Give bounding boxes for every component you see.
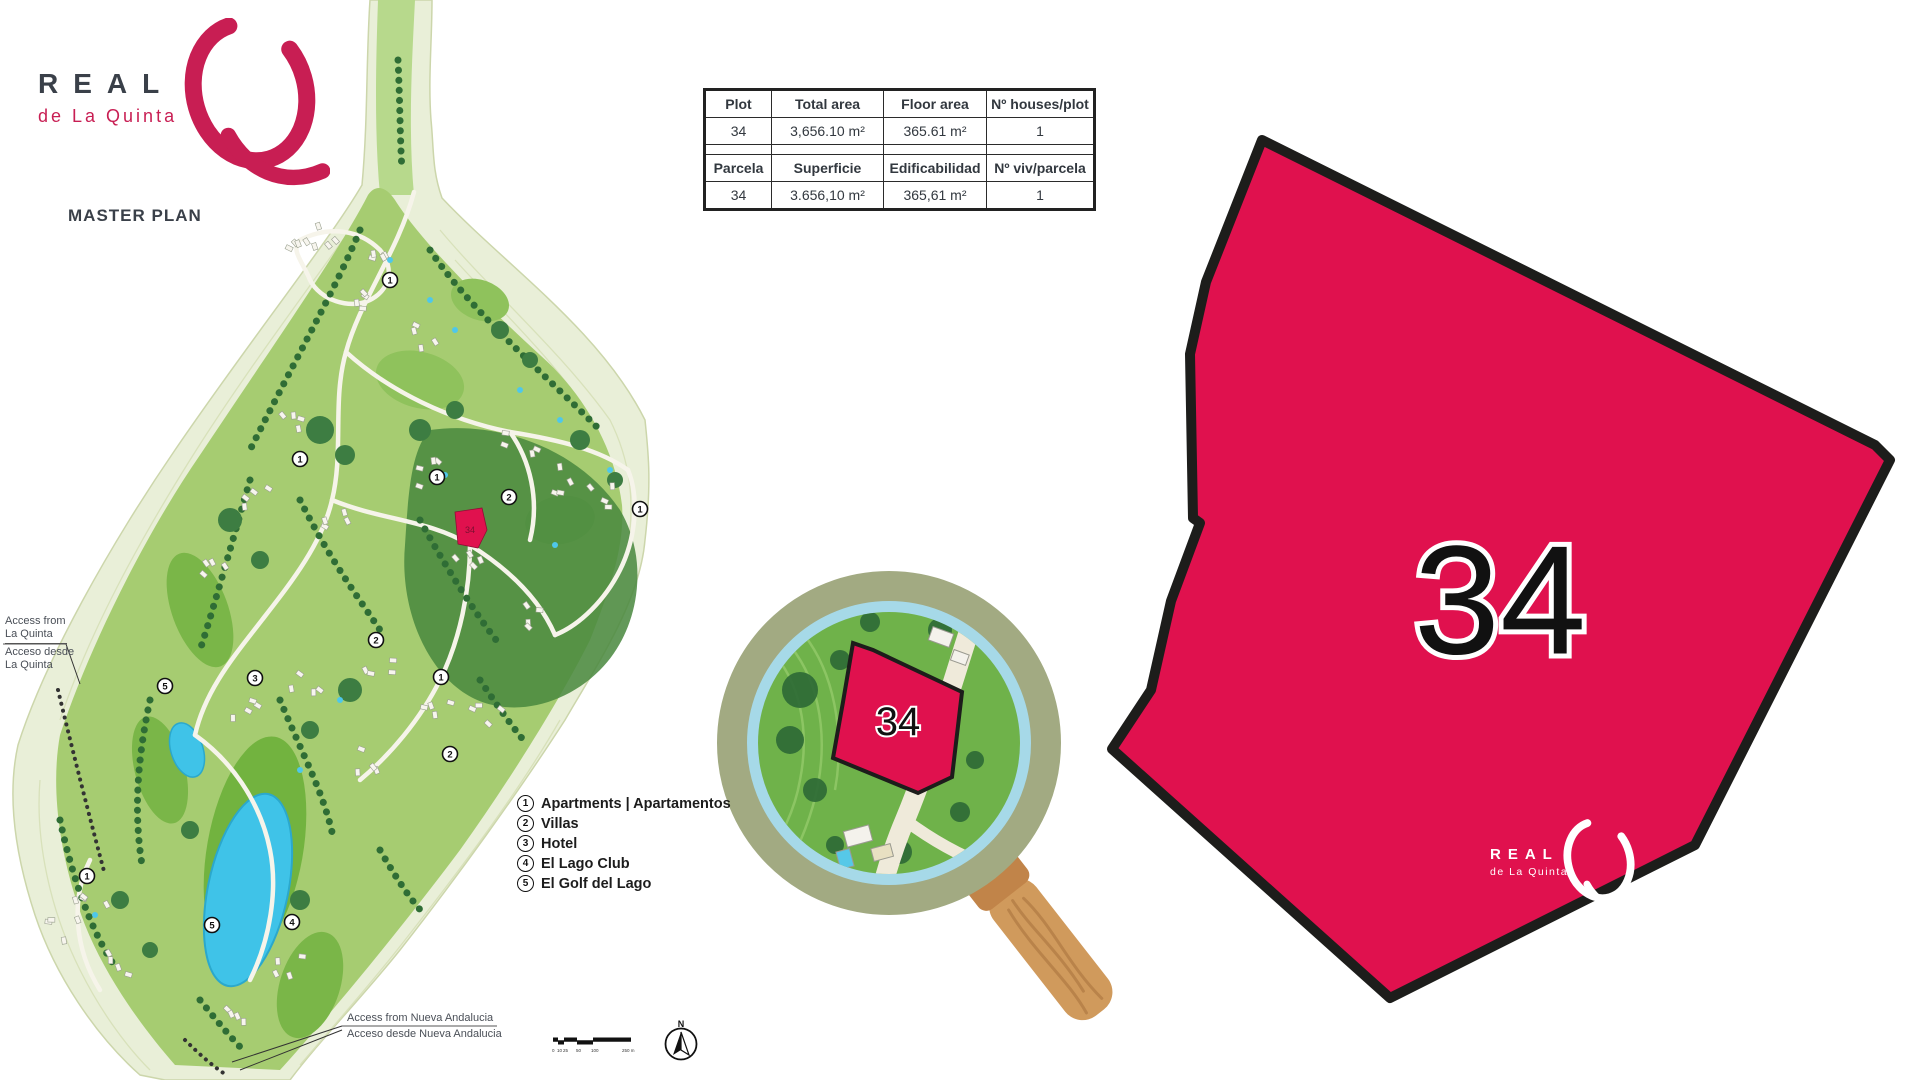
legend-number-2-icon: 2 [517, 815, 534, 832]
scale-10: 10 [557, 1048, 563, 1053]
col-superficie: Superficie [772, 155, 884, 182]
col-edificabilidad: Edificabilidad [884, 155, 987, 182]
legend-item-el-golf-del-lago: 5 El Golf del Lago [517, 875, 731, 892]
brand-name: REAL [38, 68, 174, 100]
legend-number-4-icon: 4 [517, 855, 534, 872]
plot-34-number-large: 34 [1414, 514, 1586, 687]
legend-item-el-lago-club: 4 El Lago Club [517, 855, 731, 872]
value-floor-area: 365.61 m² [884, 118, 987, 145]
table-spacer-row [705, 145, 1095, 155]
page-title: MASTER PLAN [68, 206, 202, 226]
scale-50: 50 [576, 1048, 582, 1053]
table-header-es: Parcela Superficie Edificabilidad Nº viv… [705, 155, 1095, 182]
table-header-en: Plot Total area Floor area Nº houses/plo… [705, 90, 1095, 118]
master-plan-page: 34 1112123512154 34 [0, 0, 1920, 1080]
value-viviendas: 1 [987, 182, 1095, 210]
legend-number-5-icon: 5 [517, 875, 534, 892]
table-values-es: 34 3.656,10 m² 365,61 m² 1 [705, 182, 1095, 210]
brand-subname: de La Quinta [38, 106, 177, 127]
value-total-area: 3,656.10 m² [772, 118, 884, 145]
access-la-quinta-en-2: La Quinta [5, 628, 143, 641]
plot-info-table: Plot Total area Floor area Nº houses/plo… [703, 88, 1096, 211]
col-houses: Nº houses/plot [987, 90, 1095, 118]
col-parcela: Parcela [705, 155, 772, 182]
magnifier-plot-34-label: 34 [876, 700, 921, 744]
access-label-nueva-andalucia: Access from Nueva Andalucia Acceso desde… [347, 1012, 507, 1041]
scale-0: 0 [552, 1048, 555, 1053]
plot-logo-q-icon [1556, 818, 1642, 914]
magnifier: 34 [732, 586, 1124, 1032]
access-nueva-es: Acceso desde Nueva Andalucia [347, 1028, 507, 1041]
scale-bar: 0 10 25 50 100 250 m [552, 1038, 635, 1054]
legend-item-hotel: 3 Hotel [517, 835, 731, 852]
value-houses: 1 [987, 118, 1095, 145]
brand-logo: REAL de La Quinta MASTER PLAN [30, 28, 330, 208]
access-nueva-en: Access from Nueva Andalucia [347, 1012, 507, 1025]
value-superficie: 3.656,10 m² [772, 182, 884, 210]
access-la-quinta-en-1: Access from [5, 615, 143, 628]
map-legend: 1 Apartments | Apartamentos 2 Villas 3 H… [517, 795, 731, 895]
col-plot: Plot [705, 90, 772, 118]
scale-100: 100 [591, 1048, 599, 1053]
col-viviendas: Nº viv/parcela [987, 155, 1095, 182]
legend-item-villas: 2 Villas [517, 815, 731, 832]
value-edificabilidad: 365,61 m² [884, 182, 987, 210]
table-values-en: 34 3,656.10 m² 365.61 m² 1 [705, 118, 1095, 145]
value-parcela: 34 [705, 182, 772, 210]
access-divider [5, 643, 67, 644]
legend-number-1-icon: 1 [517, 795, 534, 812]
scale-25: 25 [563, 1048, 569, 1053]
map-furniture: 0 10 25 50 100 250 m N [550, 1016, 730, 1076]
col-floor-area: Floor area [884, 90, 987, 118]
value-plot: 34 [705, 118, 772, 145]
scale-250m: 250 m [622, 1048, 635, 1053]
legend-number-3-icon: 3 [517, 835, 534, 852]
access-la-quinta-es-1: Acceso desde [5, 646, 143, 659]
legend-item-apartments: 1 Apartments | Apartamentos [517, 795, 731, 812]
col-total-area: Total area [772, 90, 884, 118]
access-label-la-quinta: Access from La Quinta Acceso desde La Qu… [5, 615, 143, 672]
brand-q-icon [170, 18, 330, 188]
access-la-quinta-es-2: La Quinta [5, 659, 143, 672]
compass-north-label: N [678, 1019, 685, 1029]
compass-rose: N [666, 1019, 697, 1060]
